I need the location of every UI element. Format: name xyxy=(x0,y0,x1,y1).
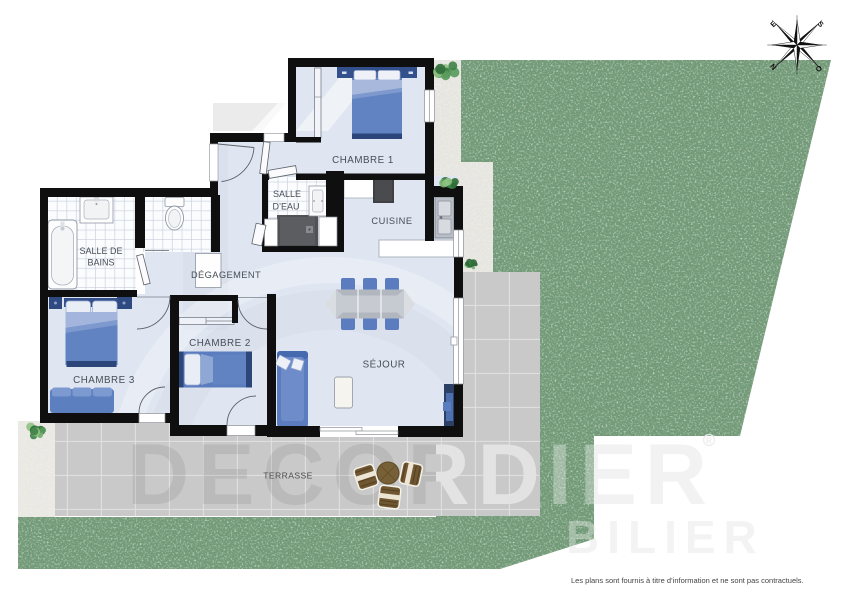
svg-text:CHAMBRE 3: CHAMBRE 3 xyxy=(73,375,135,386)
svg-text:BAINS: BAINS xyxy=(87,258,114,268)
svg-text:SÉJOUR: SÉJOUR xyxy=(363,360,406,371)
svg-text:CHAMBRE 2: CHAMBRE 2 xyxy=(189,338,251,349)
svg-text:R: R xyxy=(706,437,712,446)
svg-text:DÉGAGEMENT: DÉGAGEMENT xyxy=(191,270,261,280)
svg-text:BILIER: BILIER xyxy=(566,511,765,563)
svg-text:CHAMBRE 1: CHAMBRE 1 xyxy=(332,155,394,166)
svg-text:D’EAU: D’EAU xyxy=(272,202,299,212)
svg-text:SALLE: SALLE xyxy=(273,189,301,199)
svg-text:TERRASSE: TERRASSE xyxy=(263,471,313,481)
svg-text:CUISINE: CUISINE xyxy=(371,216,412,226)
svg-text:SALLE DE: SALLE DE xyxy=(79,246,122,256)
svg-text:Les plans sont fournis à titre: Les plans sont fournis à titre d’informa… xyxy=(571,576,804,585)
